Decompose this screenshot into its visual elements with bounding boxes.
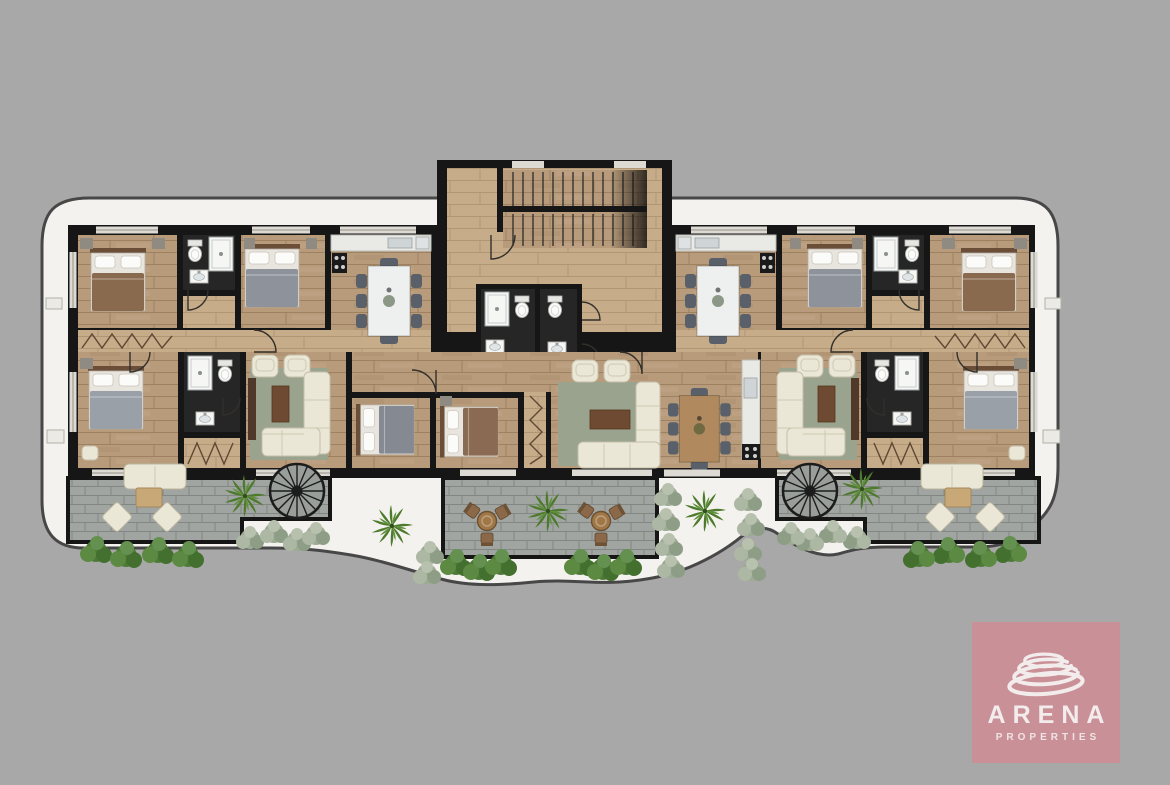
logo-swirl-icon [998,643,1094,701]
wardrobe-wall [518,392,524,468]
staircase [503,170,647,248]
toilet [548,296,562,318]
double-bed [440,406,498,458]
wardrobe-floor [524,392,546,468]
toilet [515,296,529,318]
logo-tagline-text: PROPERTIES [996,733,1100,743]
coffee-table [590,410,630,429]
stove [742,444,760,460]
bedroom-wall [430,392,436,468]
shower [485,292,509,326]
arena-properties-logo: ARENA PROPERTIES [972,622,1120,763]
kitchen-counter [742,360,760,458]
sofa [578,442,660,468]
window-strips [460,470,720,477]
floor-plan-image: ARENA PROPERTIES [0,0,1170,785]
core-partition-wall [497,168,503,232]
bedroom-wall [352,392,524,398]
sink [486,340,504,353]
nightstand [440,396,452,406]
double-bed [356,404,414,456]
logo-brand-text: ARENA [988,703,1112,728]
armchair [604,360,630,382]
wardrobe-wall [546,392,551,468]
center-apartment [352,352,760,477]
armchair [572,360,598,382]
kitchen-sink [744,378,757,398]
